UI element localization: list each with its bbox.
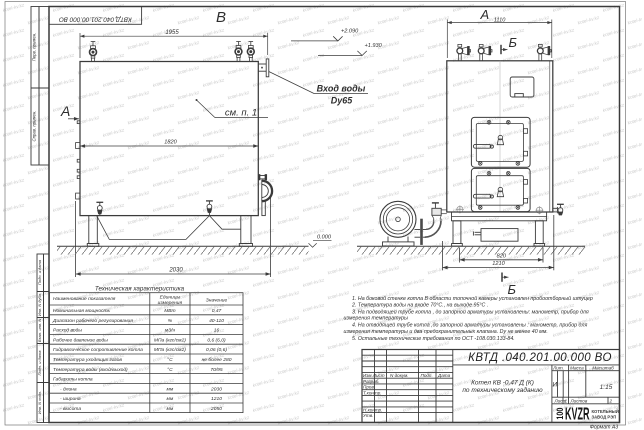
svg-text:2050: 2050 — [210, 406, 222, 412]
svg-text:Справ. примен.: Справ. примен. — [32, 111, 37, 142]
svg-text:Инв. N подл.: Инв. N подл. — [37, 391, 42, 414]
svg-text:Температура уходящих газов: Температура уходящих газов — [53, 357, 122, 363]
svg-text:Гидравлическое сопротивление к: Гидравлическое сопротивление котла — [53, 347, 143, 353]
svg-text:1:15: 1:15 — [600, 384, 613, 391]
svg-text:°С: °С — [167, 357, 173, 363]
svg-text:0,06 (0,6): 0,06 (0,6) — [206, 347, 227, 353]
svg-text:70/95: 70/95 — [210, 367, 223, 373]
svg-text:3. На подводящей трубе котла: 3. На подводящей трубе котла , до запорн… — [352, 308, 589, 315]
svg-text:Габариты котла: Габариты котла — [53, 377, 93, 383]
svg-text:Котел КВ -0,47 Д (К): Котел КВ -0,47 Д (К) — [471, 379, 534, 386]
svg-text:МПа (кгс/см2): МПа (кгс/см2) — [154, 337, 186, 343]
svg-text:- ширина: - ширина — [60, 397, 81, 402]
svg-text:+2.090: +2.090 — [341, 29, 359, 35]
svg-text:Разраб.: Разраб. — [363, 379, 380, 384]
svg-text:Инв. N дубл.: Инв. N дубл. — [37, 293, 42, 316]
svg-text:см. п. 1: см. п. 1 — [225, 108, 257, 119]
svg-text:Расход воды: Расход воды — [53, 328, 82, 334]
svg-text:измерения: измерения — [158, 301, 183, 306]
svg-text:KVZR: KVZR — [565, 403, 590, 423]
svg-text:Б: Б — [508, 282, 517, 297]
svg-text:ЗАВОД РЭП: ЗАВОД РЭП — [592, 414, 617, 419]
svg-text:измерения температуры: измерения температуры — [344, 316, 409, 322]
svg-text:Н.контр.: Н.контр. — [363, 408, 382, 413]
svg-text:Значение: Значение — [206, 297, 228, 303]
svg-text:измерения температуры и два пр: измерения температуры и два предохраните… — [344, 329, 548, 335]
svg-text:Подп.: Подп. — [421, 373, 433, 378]
svg-text:1955: 1955 — [165, 30, 179, 36]
svg-text:0.000: 0.000 — [317, 235, 332, 241]
svg-text:1820: 1820 — [164, 140, 177, 146]
svg-text:Масштаб: Масштаб — [592, 365, 614, 370]
svg-text:Номинальная мощность: Номинальная мощность — [53, 308, 111, 314]
svg-text:мм: мм — [167, 397, 174, 402]
svg-text:- длина: - длина — [60, 386, 77, 392]
svg-text:КОТЕЛЬНЫЙ: КОТЕЛЬНЫЙ — [592, 409, 619, 414]
svg-text:КВТД.040.201.00.000 ВО: КВТД.040.201.00.000 ВО — [59, 16, 132, 23]
svg-text:40-110: 40-110 — [209, 318, 224, 324]
svg-text:Дата: Дата — [437, 373, 451, 378]
svg-text:Изм.Лист: Изм.Лист — [363, 373, 385, 378]
svg-text:°С: °С — [167, 367, 173, 373]
svg-text:А: А — [60, 103, 70, 119]
svg-text:м3/ч: м3/ч — [165, 328, 175, 334]
svg-text:Единицы: Единицы — [160, 295, 181, 301]
svg-text:5. Остальные технические треб: 5. Остальные технические требования по О… — [352, 336, 515, 342]
svg-text:%: % — [168, 318, 173, 324]
svg-text:А: А — [480, 7, 490, 22]
svg-text:4. На отводящей трубе котла ,: 4. На отводящей трубе котла ,до запорной… — [352, 321, 587, 328]
svg-text:мм: мм — [167, 407, 174, 412]
svg-text:не более 280: не более 280 — [202, 357, 232, 363]
svg-text:Пров.: Пров. — [363, 385, 375, 390]
svg-text:Б: Б — [509, 35, 518, 50]
svg-text:Вход воды: Вход воды — [317, 84, 366, 94]
svg-text:Подп. и дата: Подп. и дата — [37, 350, 42, 376]
svg-text:1. На боковой стенке котла В: 1. На боковой стенке котла В области топ… — [352, 295, 593, 302]
svg-text:Лит.: Лит. — [552, 365, 564, 370]
svg-text:по техническому заданию: по техническому заданию — [462, 386, 542, 394]
svg-text:2030: 2030 — [168, 268, 183, 274]
svg-text:КВТД .040.201.00.000 ВО: КВТД .040.201.00.000 ВО — [468, 352, 612, 364]
svg-text:N докум.: N докум. — [390, 373, 409, 378]
svg-text:Температура воды (вход/выход): Температура воды (вход/выход) — [53, 367, 128, 373]
svg-text:Наименование показателя: Наименование показателя — [53, 296, 116, 302]
svg-text:- высота: - высота — [60, 407, 81, 412]
svg-text:В: В — [216, 9, 226, 26]
svg-text:МВт: МВт — [164, 308, 175, 314]
svg-text:Рабочее давление воды: Рабочее давление воды — [53, 337, 108, 343]
svg-text:Масса: Масса — [570, 365, 584, 370]
svg-text:Т.контр.: Т.контр. — [363, 390, 382, 395]
svg-text:2: 2 — [609, 398, 613, 403]
svg-text:Подп. и дата: Подп. и дата — [37, 259, 42, 285]
svg-text:+1.930: +1.930 — [365, 43, 383, 49]
svg-text:МПа (кгс/см2): МПа (кгс/см2) — [154, 347, 186, 353]
svg-text:1210: 1210 — [211, 396, 222, 402]
svg-text:Техническая характеристика: Техническая характеристика — [95, 285, 185, 292]
svg-text:1210: 1210 — [492, 261, 505, 267]
svg-text:16: 16 — [214, 328, 220, 334]
svg-text:2. Температура воды на входе: 2. Температура воды на входе 70°С., на в… — [351, 303, 488, 309]
svg-text:2030: 2030 — [210, 386, 222, 392]
svg-text:мм: мм — [167, 387, 174, 392]
svg-text:0,47: 0,47 — [212, 308, 222, 314]
svg-text:820: 820 — [497, 253, 507, 259]
svg-text:И: И — [552, 381, 557, 388]
svg-text:Формат А3: Формат А3 — [590, 425, 618, 430]
svg-text:1110: 1110 — [494, 17, 507, 23]
svg-text:0,6 (6,0): 0,6 (6,0) — [207, 337, 226, 343]
svg-text:Взам. инв. N: Взам. инв. N — [37, 319, 42, 342]
svg-text:Диапазон рабочего регулировани: Диапазон рабочего регулирования — [52, 318, 133, 324]
svg-text:Перв. примен.: Перв. примен. — [32, 33, 37, 62]
svg-text:Утв.: Утв. — [363, 413, 373, 418]
svg-text:Dy65: Dy65 — [331, 96, 354, 106]
